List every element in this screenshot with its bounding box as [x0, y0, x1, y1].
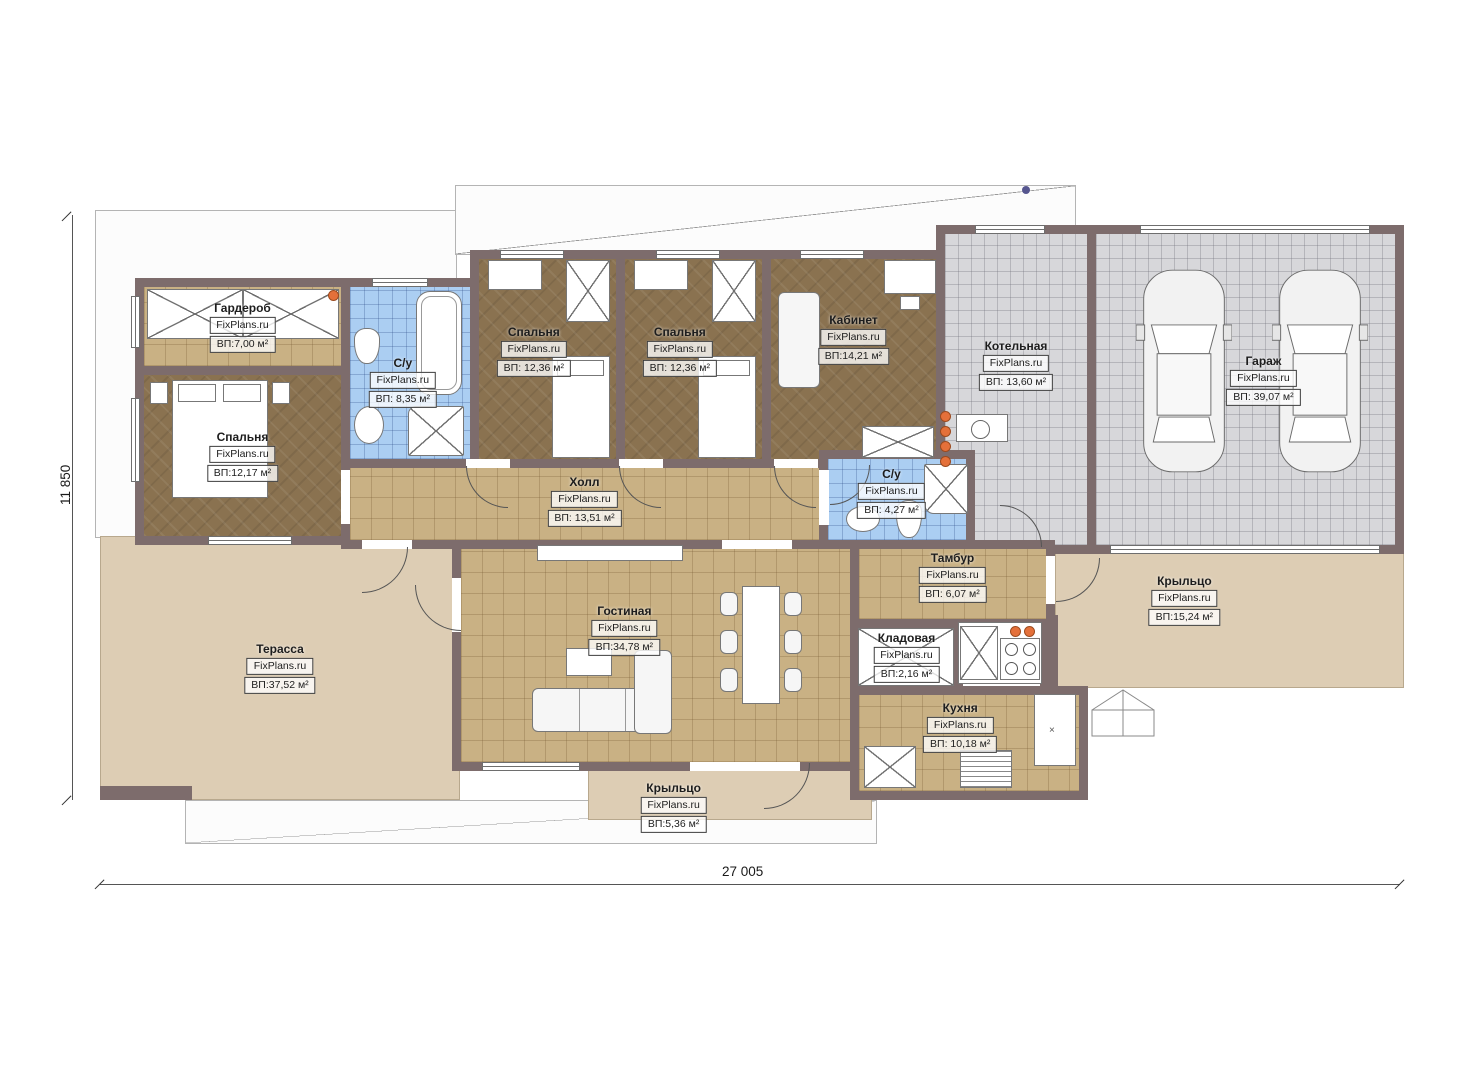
chair-icon	[720, 668, 738, 692]
chair-icon	[784, 668, 802, 692]
kitchen-sink-icon	[960, 750, 1012, 788]
outlet-icon	[1024, 626, 1035, 637]
room-label: С/у FixPlans.ru ВП: 8,35 м²	[369, 355, 437, 407]
room-area: ВП:2,16 м²	[874, 666, 940, 683]
room-label: Кухня FixPlans.ru ВП: 10,18 м²	[923, 701, 997, 753]
outlet-icon	[328, 290, 339, 301]
front-door-opening	[1046, 556, 1055, 604]
room-living: Гостиная FixPlans.ru ВП:34,78 м²	[452, 540, 859, 771]
window	[500, 250, 564, 259]
dimension-tick	[62, 211, 72, 221]
room-name: Холл	[569, 475, 599, 489]
room-label: Крыльцо FixPlans.ru ВП:5,36 м²	[640, 781, 707, 833]
garage-door	[1110, 545, 1380, 554]
room-label: Кабинет FixPlans.ru ВП:14,21 м²	[818, 313, 889, 365]
dimension-height-label: 11 850	[58, 465, 73, 505]
room-area: ВП:5,36 м²	[641, 816, 707, 833]
window	[372, 278, 428, 287]
room-area: ВП: 4,27 м²	[857, 502, 925, 519]
room-label: Спальня FixPlans.ru ВП: 12,36 м²	[497, 325, 571, 377]
room-label: С/у FixPlans.ru ВП: 4,27 м²	[857, 467, 925, 519]
room-area: ВП:15,24 м²	[1149, 609, 1220, 626]
sink-icon	[354, 406, 384, 444]
wardrobe-icon	[566, 260, 610, 322]
room-hall: Холл FixPlans.ru ВП: 13,51 м²	[341, 459, 828, 549]
entry-step-icon	[1090, 688, 1156, 738]
door-opening	[819, 470, 829, 525]
window	[131, 398, 140, 482]
office-sofa-icon	[778, 292, 820, 388]
washer-icon	[956, 414, 1008, 442]
chair-icon	[784, 592, 802, 616]
room-label: Кладовая FixPlans.ru ВП:2,16 м²	[873, 631, 940, 683]
room-name: Спальня	[654, 325, 706, 339]
room-area: ВП:12,17 м²	[207, 465, 278, 482]
pillow-icon	[178, 384, 216, 402]
room-label: Гардероб FixPlans.ru ВП:7,00 м²	[209, 300, 276, 352]
room-area: ВП:37,52 м²	[244, 677, 315, 694]
room-area: ВП: 13,51 м²	[547, 510, 621, 527]
watermark: FixPlans.ru	[927, 717, 994, 734]
stove-icon	[1000, 638, 1040, 680]
room-name: Крыльцо	[1157, 573, 1212, 587]
outlet-icon	[940, 456, 951, 467]
window	[656, 250, 720, 259]
window	[1140, 225, 1370, 234]
room-name: Кабинет	[829, 313, 878, 327]
watermark: FixPlans.ru	[873, 647, 940, 664]
watermark: FixPlans.ru	[209, 316, 276, 333]
room-name: Гараж	[1246, 354, 1282, 368]
watermark: FixPlans.ru	[858, 483, 925, 500]
watermark: FixPlans.ru	[209, 445, 276, 462]
watermark: FixPlans.ru	[640, 797, 707, 814]
outlet-icon	[1010, 626, 1021, 637]
room-name: Терасса	[256, 642, 304, 656]
dimension-line-bottom	[100, 884, 1400, 885]
room-area: ВП:7,00 м²	[210, 336, 276, 353]
window	[482, 762, 580, 771]
pillow-icon	[223, 384, 261, 402]
room-name: Спальня	[217, 429, 269, 443]
room-label: Холл FixPlans.ru ВП: 13,51 м²	[547, 475, 621, 527]
watermark: FixPlans.ru	[551, 491, 618, 508]
wall-stub	[100, 786, 192, 800]
chair-icon	[720, 630, 738, 654]
chair-icon	[900, 296, 920, 310]
room-area: ВП: 10,18 м²	[923, 736, 997, 753]
room-name: Котельная	[985, 338, 1048, 352]
shower-icon	[924, 464, 968, 514]
door-opening	[341, 470, 350, 524]
room-name: Крыльцо	[646, 781, 701, 795]
room-label: Спальня FixPlans.ru ВП: 12,36 м²	[643, 325, 717, 377]
room-area: ВП: 6,07 м²	[918, 586, 986, 603]
kitchen-counter: ×	[1034, 694, 1076, 766]
door-opening	[722, 540, 792, 549]
desk-icon	[884, 260, 936, 294]
room-name: С/у	[882, 467, 901, 481]
room-label: Терасса FixPlans.ru ВП:37,52 м²	[244, 642, 315, 694]
room-area: ВП: 8,35 м²	[369, 391, 437, 408]
dining-table-icon	[742, 586, 780, 704]
chair-icon	[784, 630, 802, 654]
survey-point-icon	[1022, 186, 1030, 194]
tv-console-icon	[537, 545, 683, 561]
shower-icon	[408, 406, 464, 456]
window	[800, 250, 864, 259]
dimension-line-left	[72, 215, 73, 800]
room-area: ВП: 39,07 м²	[1226, 389, 1300, 406]
watermark: FixPlans.ru	[919, 567, 986, 584]
room-vestibule: Тамбур FixPlans.ru ВП: 6,07 м²	[850, 540, 1055, 628]
window	[131, 296, 140, 348]
room-porch-right: Крыльцо FixPlans.ru ВП:15,24 м²	[1055, 545, 1404, 688]
room-name: Кухня	[943, 701, 978, 715]
room-area: ВП: 12,36 м²	[497, 360, 571, 377]
room-label: Гараж FixPlans.ru ВП: 39,07 м²	[1226, 354, 1300, 406]
room-name: Спальня	[508, 325, 560, 339]
watermark: FixPlans.ru	[983, 354, 1050, 371]
outlet-icon	[940, 411, 951, 422]
room-terrace: Терасса FixPlans.ru ВП:37,52 м²	[100, 536, 460, 800]
chair-icon	[720, 592, 738, 616]
room-label: Спальня FixPlans.ru ВП:12,17 м²	[207, 429, 278, 481]
room-area: ВП: 13,60 м²	[979, 374, 1053, 391]
watermark: FixPlans.ru	[370, 371, 437, 388]
room-label: Крыльцо FixPlans.ru ВП:15,24 м²	[1149, 573, 1220, 625]
room-name: Тамбур	[931, 551, 975, 565]
watermark: FixPlans.ru	[247, 658, 314, 675]
room-area: ВП:14,21 м²	[818, 348, 889, 365]
room-name: Гардероб	[214, 300, 271, 314]
shelving-icon	[864, 746, 916, 788]
room-area: ВП:34,78 м²	[589, 639, 660, 656]
floor-plan: Терасса FixPlans.ru ВП:37,52 м² Крыльцо …	[0, 0, 1474, 1080]
desk-icon	[634, 260, 688, 290]
room-label: Тамбур FixPlans.ru ВП: 6,07 м²	[918, 551, 986, 603]
window	[208, 536, 292, 545]
room-area: ВП: 12,36 м²	[643, 360, 717, 377]
wardrobe-icon	[712, 260, 756, 322]
watermark: FixPlans.ru	[591, 620, 658, 637]
sofa-chaise-icon	[634, 650, 672, 734]
car-icon	[1136, 262, 1232, 480]
room-label: Котельная FixPlans.ru ВП: 13,60 м²	[979, 338, 1053, 390]
room-label: Гостиная FixPlans.ru ВП:34,78 м²	[589, 604, 660, 656]
desk-icon	[488, 260, 542, 290]
watermark: FixPlans.ru	[1230, 370, 1297, 387]
fridge-icon	[960, 626, 998, 680]
watermark: FixPlans.ru	[647, 341, 714, 358]
room-name: Кладовая	[878, 631, 935, 645]
room-name: Гостиная	[597, 604, 651, 618]
watermark: FixPlans.ru	[820, 329, 887, 346]
dimension-width-label: 27 005	[722, 864, 763, 879]
window	[975, 225, 1045, 234]
outlet-icon	[940, 426, 951, 437]
watermark: FixPlans.ru	[1151, 589, 1218, 606]
outlet-icon	[940, 441, 951, 452]
nightstand-icon	[150, 382, 168, 404]
nightstand-icon	[272, 382, 290, 404]
wardrobe-icon	[862, 426, 934, 458]
watermark: FixPlans.ru	[501, 341, 568, 358]
room-name: С/у	[393, 355, 412, 369]
dimension-tick	[62, 795, 72, 805]
